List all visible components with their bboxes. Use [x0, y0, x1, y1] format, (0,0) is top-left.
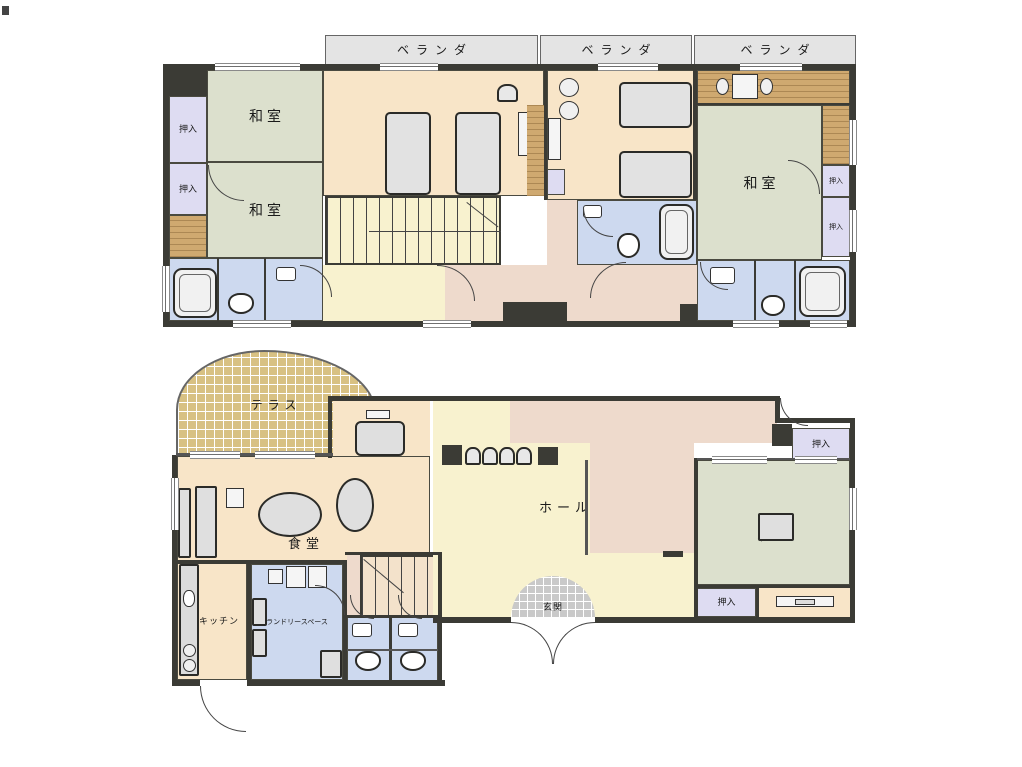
- chair-icon: [559, 78, 579, 97]
- cabinet-dark-icon: [538, 447, 558, 465]
- closet-label: 押入: [829, 178, 843, 185]
- sideboard-icon: [776, 596, 834, 607]
- closet-2f-right-1: 押入: [822, 165, 850, 197]
- sink-icon: [398, 623, 418, 637]
- room-label: 和室: [245, 203, 285, 217]
- window: [712, 456, 767, 464]
- wall: [217, 258, 219, 321]
- wall: [694, 585, 855, 588]
- washitsu-2f-left-top: 和室: [207, 70, 323, 162]
- oval-table-icon: [258, 492, 322, 537]
- toilet-icon: [355, 651, 381, 671]
- window: [190, 451, 240, 459]
- wall: [694, 458, 698, 620]
- wall: [176, 560, 347, 564]
- wall: [503, 302, 567, 321]
- window: [849, 488, 857, 530]
- pillar: [442, 445, 462, 465]
- sink-icon: [276, 267, 296, 281]
- room-label: 和室: [740, 176, 780, 190]
- bench-icon: [178, 488, 191, 558]
- outer-wall-bottom-1f-b: [595, 617, 855, 623]
- toilet-icon: [228, 293, 254, 314]
- stair-break-line: [466, 202, 498, 227]
- closet-label: 押入: [179, 125, 197, 134]
- washer-icon: [268, 569, 283, 584]
- window: [733, 320, 779, 328]
- closet-2f-left-1: 押入: [169, 96, 207, 163]
- corridor-1f-side: [590, 443, 694, 553]
- first-floor-plan: テラス 食堂 キッチン ランドリースペース: [0, 340, 1022, 767]
- veranda-3-label: ベランダ: [733, 44, 816, 56]
- bed-icon: [455, 112, 501, 195]
- stair-break-line: [363, 559, 403, 593]
- low-table-icon: [758, 513, 794, 541]
- veranda-1-label: ベランダ: [390, 44, 473, 56]
- window: [255, 451, 315, 459]
- closet-2f-left-2: 押入: [169, 163, 207, 215]
- dining-label: 食堂: [283, 537, 324, 562]
- window: [849, 120, 857, 165]
- window: [810, 320, 847, 328]
- chair-icon: [499, 447, 515, 465]
- corridor-1f-top: [510, 400, 777, 443]
- bathtub-icon: [659, 204, 694, 260]
- cabinet-icon: [226, 488, 244, 508]
- corridor-nook: [547, 200, 577, 265]
- cabinet-icon: [252, 629, 267, 657]
- washitsu-1f: 和室: [697, 460, 850, 585]
- desk-icon: [548, 118, 561, 160]
- chair-icon: [497, 84, 518, 102]
- wall-thin: [585, 460, 588, 555]
- entrance-label: 玄関: [543, 603, 563, 618]
- wall: [756, 588, 759, 617]
- chair-icon: [516, 447, 532, 465]
- sofa-icon: [355, 421, 405, 456]
- wood-closet-strip: [527, 105, 544, 196]
- chair-icon: [760, 78, 773, 95]
- window: [423, 320, 471, 328]
- outer-wall-bottom-1f-a: [433, 617, 511, 623]
- oval-table-icon: [336, 478, 374, 532]
- bathtub-icon: [799, 266, 846, 317]
- window: [380, 63, 438, 71]
- toilet-icon: [400, 651, 426, 671]
- stove-burner-icon: [183, 644, 196, 657]
- closet-label: 押入: [717, 598, 735, 607]
- wall-thin: [347, 649, 438, 651]
- door-arc: [200, 686, 246, 732]
- laundry-label: ランドリースペース: [266, 619, 328, 626]
- bed-icon: [619, 151, 692, 198]
- closet-label: 押入: [812, 440, 830, 449]
- window: [215, 63, 300, 71]
- chair-icon: [716, 78, 729, 95]
- bench-icon: [195, 486, 217, 558]
- terrace-label: テラス: [251, 399, 302, 411]
- bed-icon: [619, 82, 692, 128]
- veranda-2-label: ベランダ: [574, 44, 657, 56]
- wall-stub: [663, 551, 683, 557]
- toilet-icon: [617, 233, 640, 258]
- cabinet-icon: [320, 650, 342, 678]
- entrance-door-arc-left: [511, 622, 553, 664]
- wood-bay-2f-right: [822, 105, 850, 165]
- bathtub-icon: [173, 268, 217, 318]
- veranda-1: ベランダ: [325, 35, 538, 65]
- chair-icon: [465, 447, 481, 465]
- outer-wall-right-2f: [850, 64, 856, 327]
- wall: [264, 258, 266, 321]
- staircase-2f: [325, 196, 501, 265]
- wall-corner-block: [169, 70, 207, 96]
- wall: [794, 260, 796, 321]
- wall: [343, 560, 347, 684]
- wall-stub: [505, 617, 511, 623]
- second-floor-plan: ベランダ ベランダ ベランダ 押入 押入 和室 和室: [0, 0, 1022, 340]
- sink-icon: [352, 623, 372, 637]
- corridor-2f-east: [445, 265, 697, 321]
- cabinet-icon: [252, 598, 267, 626]
- wall-block: [772, 424, 792, 446]
- closet-1f-bottom: 押入: [697, 588, 756, 617]
- table-icon: [732, 74, 758, 99]
- wall: [328, 396, 332, 458]
- wood-bay-2f-left: [169, 215, 207, 258]
- stair-landing-line: [369, 231, 501, 232]
- wall: [345, 552, 442, 555]
- window: [233, 320, 291, 328]
- wall: [754, 260, 756, 321]
- toilet-icon: [761, 295, 785, 316]
- window: [849, 210, 857, 252]
- window: [171, 478, 179, 530]
- veranda-3: ベランダ: [694, 35, 856, 65]
- room-label: 和室: [245, 109, 285, 123]
- closet-label: 押入: [829, 224, 843, 231]
- window: [598, 63, 658, 71]
- wall: [345, 615, 442, 618]
- kitchen-sink-icon: [183, 590, 195, 607]
- sideboard-top: [795, 599, 815, 605]
- bed-icon: [385, 112, 431, 195]
- closet-small: [547, 169, 565, 195]
- floor-plan-image: ベランダ ベランダ ベランダ 押入 押入 和室 和室: [0, 0, 1022, 767]
- outer-wall-topright-1f: [775, 418, 855, 423]
- outer-wall-bottomleft-1f-a: [172, 680, 200, 686]
- entrance-door-arc-right: [553, 622, 595, 664]
- window: [795, 456, 837, 464]
- outer-wall-top-1f: [330, 396, 777, 401]
- window: [740, 63, 802, 71]
- wall: [247, 560, 251, 684]
- washer-icon: [286, 566, 306, 588]
- veranda-2: ベランダ: [540, 35, 692, 65]
- chair-icon: [482, 447, 498, 465]
- wall-stub: [595, 617, 601, 623]
- chair-icon: [559, 101, 579, 120]
- closet-label: 押入: [179, 185, 197, 194]
- closet-2f-right-2: 押入: [822, 197, 850, 257]
- corridor-2f-west: [323, 265, 445, 321]
- stove-burner-icon: [183, 659, 196, 672]
- window: [162, 266, 170, 312]
- side-table-icon: [366, 410, 390, 419]
